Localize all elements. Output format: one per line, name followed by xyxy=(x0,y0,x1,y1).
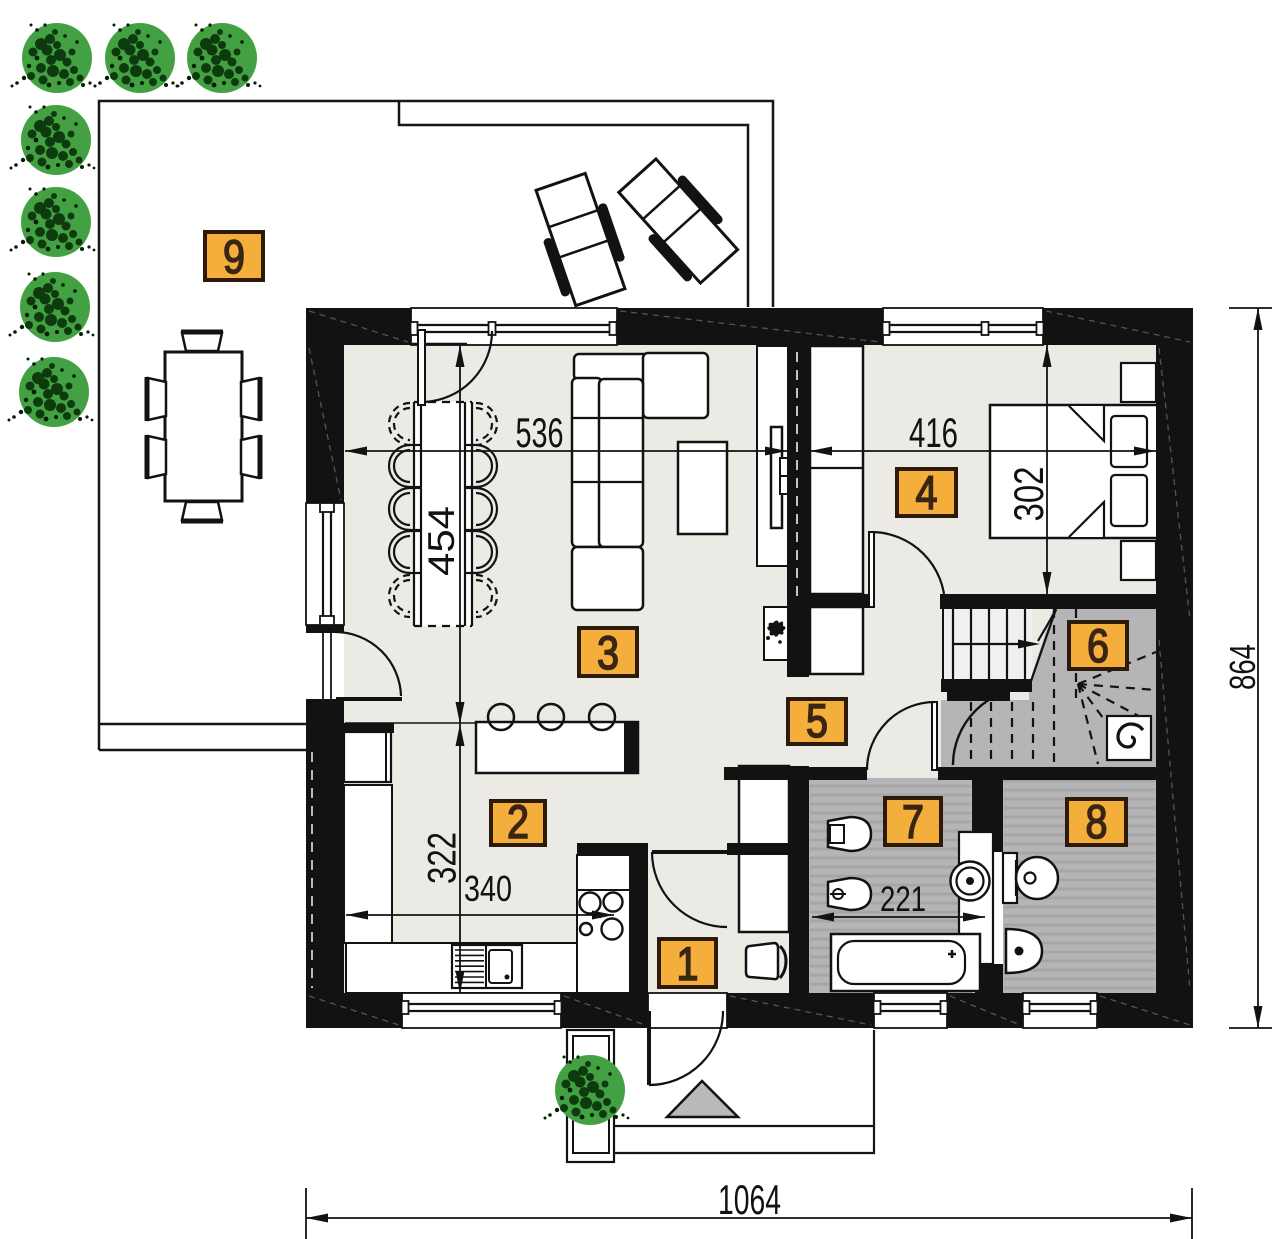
svg-text:322: 322 xyxy=(421,832,465,884)
svg-text:9: 9 xyxy=(223,230,245,283)
svg-text:536: 536 xyxy=(516,409,564,456)
svg-text:416: 416 xyxy=(909,409,958,456)
svg-text:8: 8 xyxy=(1086,795,1108,848)
svg-text:2: 2 xyxy=(507,795,529,848)
svg-text:4: 4 xyxy=(916,466,938,519)
svg-text:1064: 1064 xyxy=(718,1176,781,1223)
svg-text:221: 221 xyxy=(880,880,926,919)
svg-text:302: 302 xyxy=(1005,467,1052,522)
svg-text:864: 864 xyxy=(1222,644,1263,690)
svg-text:1: 1 xyxy=(677,937,699,990)
svg-text:6: 6 xyxy=(1087,619,1109,672)
svg-text:340: 340 xyxy=(464,868,512,909)
svg-text:7: 7 xyxy=(902,795,924,848)
svg-text:5: 5 xyxy=(806,694,828,747)
svg-text:454: 454 xyxy=(421,506,462,576)
svg-text:3: 3 xyxy=(597,626,619,679)
